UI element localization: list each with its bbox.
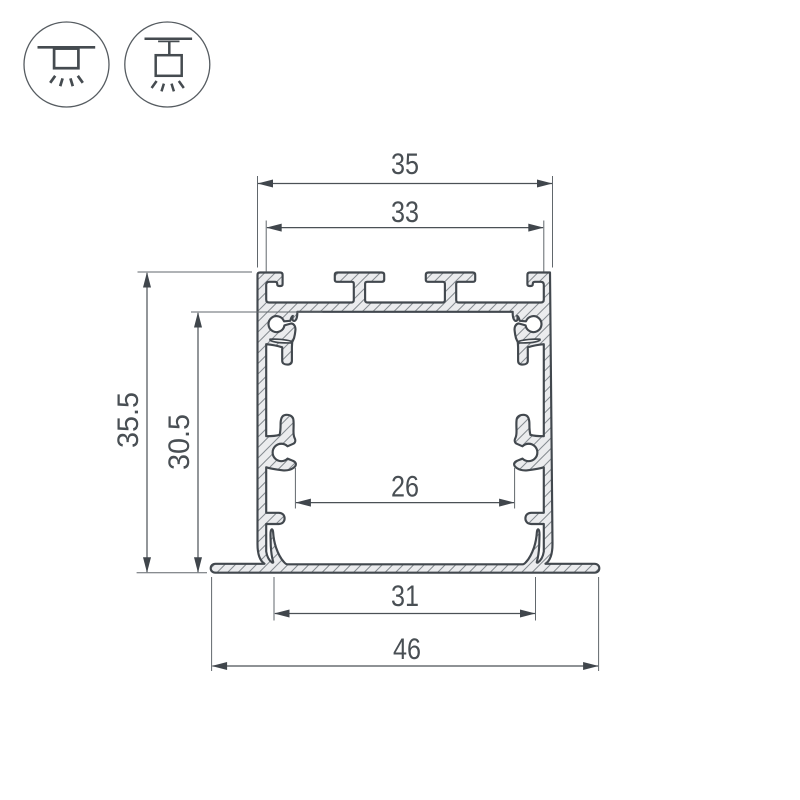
svg-text:35: 35 (391, 148, 419, 181)
svg-text:35.5: 35.5 (112, 392, 145, 448)
svg-text:33: 33 (391, 196, 419, 229)
svg-text:46: 46 (393, 633, 421, 666)
svg-text:26: 26 (391, 471, 419, 504)
svg-text:31: 31 (391, 580, 419, 613)
svg-text:30.5: 30.5 (163, 414, 196, 470)
